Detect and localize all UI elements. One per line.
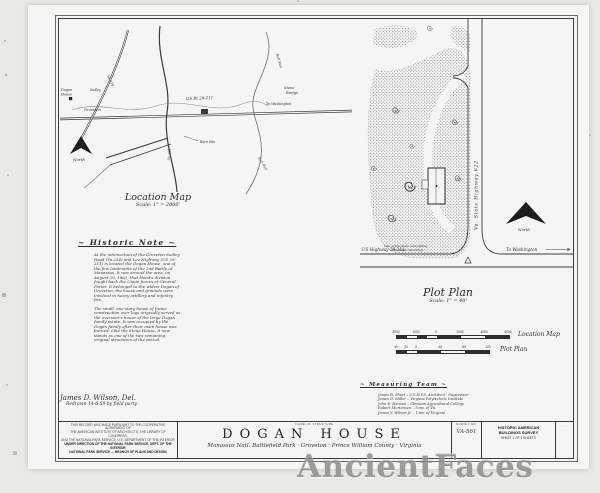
survey-number-label: SURVEY NO. bbox=[452, 422, 481, 426]
va-234-road bbox=[76, 30, 128, 148]
graphic-scale-bars: 2000 1000 0 2000 4000 6000 Location Map … bbox=[396, 330, 566, 360]
team-member: James Y. Wilson Jr. – Univ. of Virginia bbox=[378, 411, 468, 415]
label-hwy-622: Va. State Highway 622 bbox=[474, 160, 480, 230]
title-block-corner-cell: · · · · · · · · bbox=[555, 422, 573, 458]
label-plot-to-washington: To Washington bbox=[506, 247, 538, 252]
label-barn-site: Barn Site bbox=[199, 140, 215, 144]
location-map-scale-bar: 2000 1000 0 2000 4000 6000 Location Map bbox=[396, 330, 566, 345]
plot-plan-title: Plot Plan Scale: 1" = 40' bbox=[403, 286, 493, 304]
measuring-team-heading: ~ Measuring Team ~ bbox=[360, 382, 447, 388]
title-block-legal-text: THIS RECORD WAS MADE PURSUANT TO THE COO… bbox=[59, 422, 177, 458]
label-plot-north: North bbox=[517, 227, 530, 232]
tick: 80 bbox=[462, 345, 466, 349]
label-stone-1: Stone bbox=[284, 86, 295, 90]
location-map-scale-text: Scale: 1" = 2000' bbox=[108, 202, 208, 208]
scale-bar-segments bbox=[396, 335, 510, 340]
plot-plan: Va. State Highway 622 US Highway 29-211 … bbox=[360, 18, 574, 270]
tick: 40 bbox=[438, 345, 442, 349]
tick: 0 bbox=[415, 345, 417, 349]
signature-line1: James D. Wilson, Del. bbox=[60, 394, 137, 402]
measuring-team-list: James R. Short – U.S.N.P.S. Architect : … bbox=[378, 393, 468, 415]
ancientfaces-watermark: AncientFaces bbox=[297, 449, 533, 485]
side-road-3 bbox=[84, 165, 110, 188]
location-map-roads bbox=[60, 26, 352, 192]
label-us-rt: US Rt 29-211 bbox=[186, 95, 214, 101]
va-622-road bbox=[159, 26, 177, 192]
va-234-road-core bbox=[76, 30, 128, 148]
plot-plan-scale-bar: 40 20 0 40 80 120 Plot Plan bbox=[396, 345, 566, 360]
to-washington-arrow bbox=[546, 248, 570, 251]
historic-note-body: At the intersection of the Groveton-Sudl… bbox=[94, 253, 182, 347]
stippled-patch-topleft bbox=[373, 25, 418, 48]
plot-north-arrow-icon bbox=[506, 202, 546, 224]
sheet-title: DOGAN HOUSE bbox=[178, 427, 451, 442]
dogan-house-marker bbox=[69, 97, 72, 100]
stippled-patch-topright bbox=[450, 25, 470, 52]
tick: 1000 bbox=[412, 330, 419, 334]
hwy-622-east-line bbox=[482, 18, 502, 254]
plot-plan-scale-text: Scale: 1" = 40' bbox=[403, 298, 493, 304]
delineator-signature: James D. Wilson, Del. Redrawn 14-6-59 by… bbox=[60, 394, 137, 407]
label-va622: Va 622 bbox=[167, 148, 172, 160]
label-groveton: Groveton bbox=[84, 108, 102, 112]
label-outbuilding-note-2: (no longer standing) bbox=[392, 248, 424, 252]
label-to-washington: To Washington bbox=[266, 102, 291, 106]
label-sudley: Sudley bbox=[90, 88, 101, 92]
location-map: Dogan House Groveton Sudley Va 234 Va 62… bbox=[60, 18, 352, 210]
tick: 20 bbox=[404, 345, 408, 349]
label-bull-run-upper: Bull Run bbox=[275, 52, 283, 68]
scanned-habs-sheet: Dogan House Groveton Sudley Va 234 Va 62… bbox=[0, 0, 600, 493]
label-north: North bbox=[72, 157, 85, 162]
tick: 0 bbox=[435, 330, 437, 334]
historic-note-para2: The small, one-story house of frame cons… bbox=[94, 307, 182, 343]
location-map-title: Location Map Scale: 1" = 2000' bbox=[108, 192, 208, 208]
barn-leader-line bbox=[184, 136, 198, 141]
tick: 2000 bbox=[456, 330, 463, 334]
scale-bar-label-location: Location Map bbox=[518, 331, 560, 338]
youngs-branch-creek bbox=[72, 101, 268, 110]
historic-note-heading: ~ Historic Note ~ bbox=[78, 238, 176, 247]
plot-plan-vegetation bbox=[368, 25, 470, 258]
station-triangle-marker bbox=[465, 257, 471, 263]
scale-bar-label-plot: Plot Plan bbox=[500, 346, 527, 353]
tick: 6000 bbox=[504, 330, 511, 334]
label-dogan-2: House bbox=[60, 93, 72, 97]
tick: 40 bbox=[394, 345, 398, 349]
habs-line2: BUILDINGS SURVEY bbox=[482, 430, 555, 435]
tick: 120 bbox=[485, 345, 490, 349]
house-steps bbox=[422, 180, 428, 189]
sheet-count: SHEET 1 OF 3 SHEETS bbox=[482, 436, 555, 440]
legal-line: NATIONAL PARK SERVICE — BRANCH OF PLANS … bbox=[61, 451, 175, 455]
signature-line2: Redrawn 14-6-59 by field party bbox=[66, 402, 137, 407]
north-arrow-icon bbox=[70, 136, 92, 154]
tick: 2000 bbox=[392, 330, 399, 334]
name-of-structure-label: NAME OF STRUCTURE bbox=[178, 422, 451, 426]
label-stone-2: Bridge bbox=[285, 91, 298, 95]
corner-note-line: · · · bbox=[556, 428, 573, 432]
historic-note-para1: At the intersection of the Groveton-Sudl… bbox=[94, 253, 182, 303]
road-bridge-mark bbox=[201, 109, 208, 114]
tick: 4000 bbox=[480, 330, 487, 334]
location-map-labels: Dogan House Groveton Sudley Va 234 Va 62… bbox=[60, 52, 298, 171]
survey-number-value: VA-561 bbox=[452, 429, 481, 435]
scale-bar-segments bbox=[396, 350, 490, 355]
label-dogan-1: Dogan bbox=[60, 88, 72, 92]
scan-specks bbox=[4, 40, 6, 42]
